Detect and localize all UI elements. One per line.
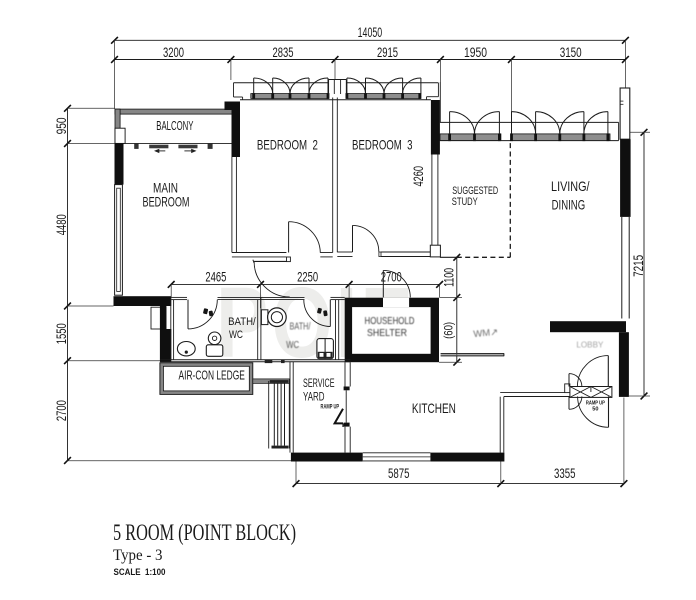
svg-text:SCALE 1:100: SCALE 1:100 (114, 567, 166, 578)
svg-text:2700: 2700 (381, 269, 402, 285)
svg-text:3200: 3200 (163, 44, 184, 60)
svg-text:SHELTER: SHELTER (367, 327, 407, 339)
svg-text:2835: 2835 (273, 44, 294, 60)
svg-text:4260: 4260 (410, 166, 426, 187)
svg-text:1100: 1100 (441, 268, 457, 287)
svg-text:1550: 1550 (53, 323, 69, 344)
svg-text:KITCHEN: KITCHEN (412, 400, 456, 416)
svg-text:14050: 14050 (358, 24, 383, 40)
svg-text:Type - 3: Type - 3 (113, 547, 163, 564)
svg-text:950: 950 (53, 117, 69, 134)
svg-text:1950: 1950 (464, 44, 487, 60)
svg-text:WM↗: WM↗ (473, 327, 499, 340)
svg-text:HOUSEHOLD: HOUSEHOLD (365, 315, 415, 327)
svg-text:RAMP UP: RAMP UP (321, 404, 340, 410)
svg-text:LIVING/: LIVING/ (551, 178, 590, 194)
svg-text:2250: 2250 (297, 269, 318, 285)
svg-text:AIR-CON LEDGE: AIR-CON LEDGE (179, 368, 245, 382)
svg-text:7215: 7215 (630, 255, 646, 277)
svg-text:BATH/: BATH/ (228, 316, 256, 328)
svg-text:2700: 2700 (53, 400, 69, 421)
svg-text:STUDY: STUDY (452, 196, 478, 208)
svg-text:YARD: YARD (303, 392, 325, 404)
svg-text:BEDROOM 3: BEDROOM 3 (352, 136, 413, 152)
svg-text:(60): (60) (443, 322, 455, 339)
svg-text:LOBBY: LOBBY (576, 340, 604, 349)
svg-text:3150: 3150 (560, 44, 582, 60)
svg-text:SERVICE: SERVICE (303, 378, 335, 390)
svg-text:50: 50 (592, 406, 598, 412)
svg-text:5875: 5875 (388, 465, 410, 481)
svg-text:BATH/: BATH/ (290, 321, 311, 333)
svg-text:WC: WC (286, 339, 299, 351)
svg-text:2915: 2915 (377, 44, 398, 60)
svg-text:BALCONY: BALCONY (156, 119, 194, 133)
svg-text:2465: 2465 (205, 269, 226, 285)
svg-text:3355: 3355 (554, 465, 576, 481)
svg-text:5 ROOM (POINT BLOCK): 5 ROOM (POINT BLOCK) (113, 520, 296, 545)
svg-text:BEDROOM 2: BEDROOM 2 (257, 136, 318, 152)
svg-text:4480: 4480 (53, 214, 69, 235)
svg-text:WC: WC (229, 329, 243, 341)
svg-text:BEDROOM: BEDROOM (143, 194, 190, 210)
svg-text:DINING: DINING (552, 196, 586, 212)
